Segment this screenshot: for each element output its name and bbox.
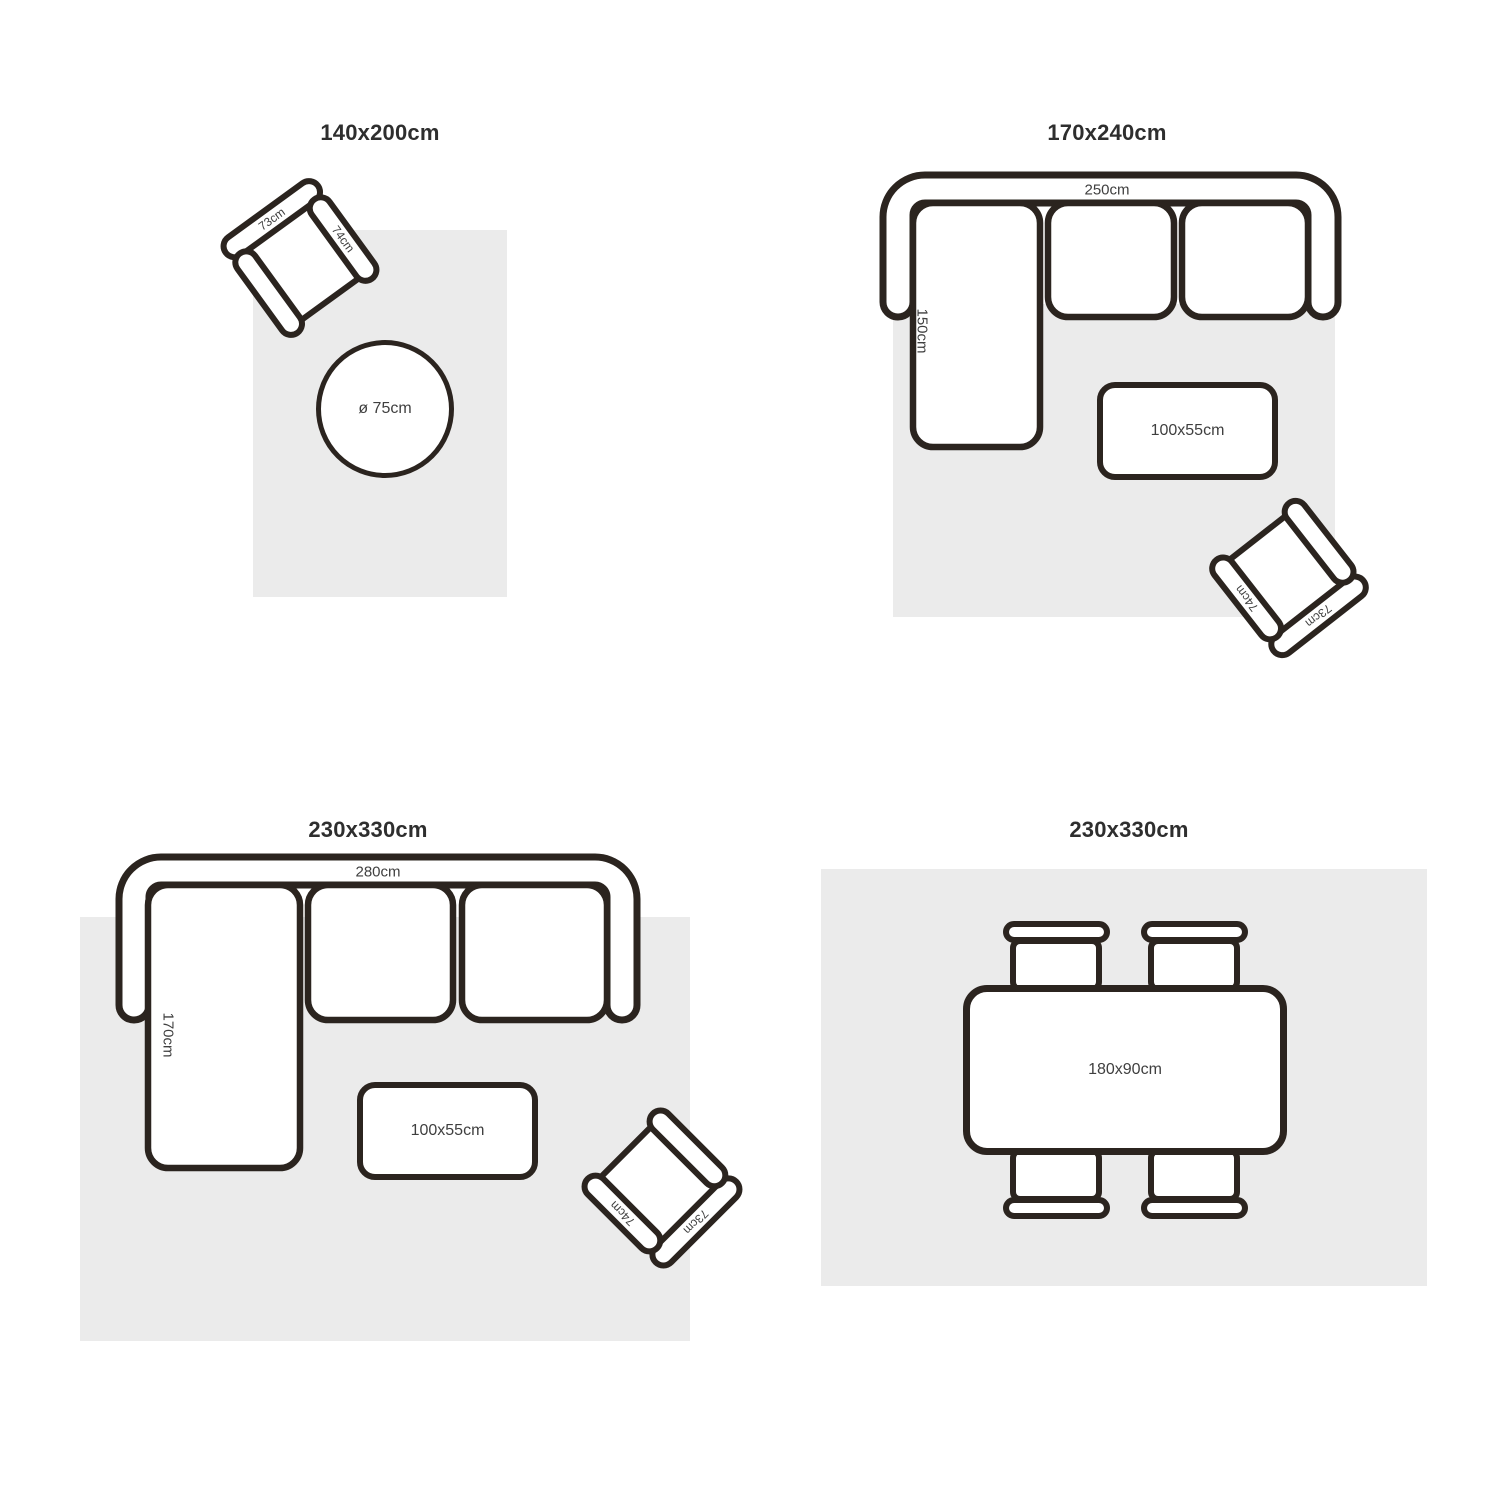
dining-table-label: 180x90cm	[1088, 1061, 1162, 1079]
coffee-table-label: 100x55cm	[411, 1122, 485, 1140]
armchair-back-label: 73cm	[1303, 601, 1335, 630]
sofa-width-label: 280cm	[355, 864, 400, 881]
dining-chair-seat	[1010, 938, 1102, 992]
sofa-depth-label: 170cm	[160, 1012, 177, 1057]
dining-table: 180x90cm	[963, 985, 1287, 1155]
dining-chair-seat	[1010, 1148, 1102, 1202]
sofa-depth-label: 150cm	[914, 308, 931, 353]
panel-title-230x330-sofa: 230x330cm	[238, 817, 498, 843]
coffee-table: 100x55cm	[1097, 382, 1278, 480]
sofa-width-label: 250cm	[1084, 182, 1129, 199]
round-table-label: ø 75cm	[358, 400, 411, 418]
armchair-back-label: 73cm	[681, 1207, 712, 1238]
dining-chair-back	[1141, 921, 1248, 943]
panel-title-170x240: 170x240cm	[977, 120, 1237, 146]
sofa-cushion	[1182, 203, 1308, 317]
round-side-table: ø 75cm	[316, 340, 454, 478]
sofa-cushion	[462, 885, 607, 1020]
panel-title-140x200: 140x200cm	[250, 120, 510, 146]
dining-chair-back	[1003, 1197, 1110, 1219]
dining-chair-back	[1003, 921, 1110, 943]
sofa-cushion	[1048, 203, 1174, 317]
dining-chair-seat	[1148, 938, 1240, 992]
coffee-table-label: 100x55cm	[1151, 422, 1225, 440]
sofa-cushion	[308, 885, 453, 1020]
dining-chair-seat	[1148, 1148, 1240, 1202]
sofa-chaise	[913, 203, 1040, 447]
dining-chair-back	[1141, 1197, 1248, 1219]
armchair-arm-label: 74cm	[329, 223, 358, 255]
rug-size-guide: 140x200cm 73cm 74cm ø 75cm 170x240cm 250…	[0, 0, 1500, 1500]
panel-title-230x330-dining: 230x330cm	[999, 817, 1259, 843]
coffee-table: 100x55cm	[357, 1082, 538, 1180]
